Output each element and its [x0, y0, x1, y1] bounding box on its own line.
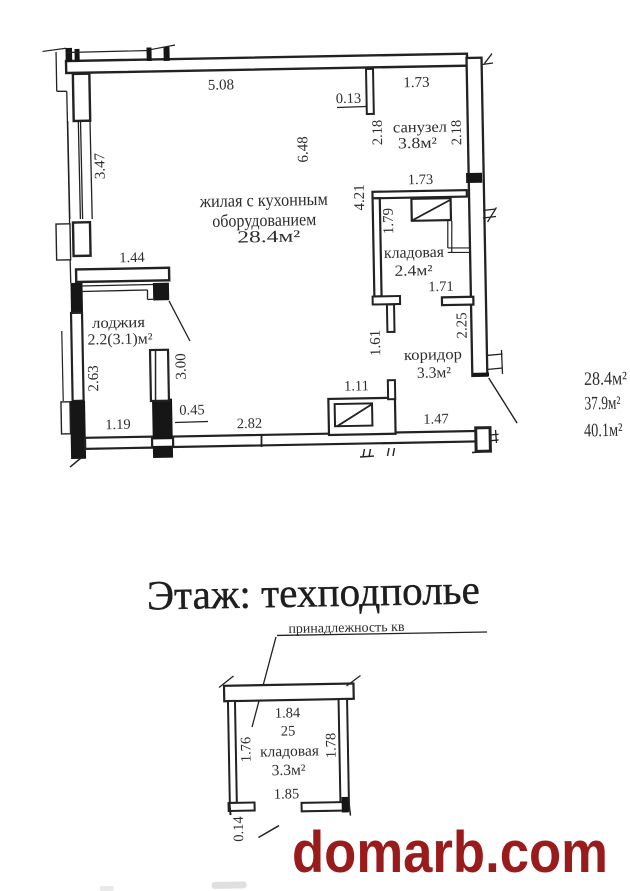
svg-text:2.18: 2.18 [370, 120, 386, 146]
svg-text:2.82: 2.82 [237, 416, 263, 432]
svg-text:1.11: 1.11 [344, 378, 369, 394]
svg-text:3.47: 3.47 [92, 152, 108, 179]
svg-text:0.45: 0.45 [179, 402, 205, 418]
svg-text:1.19: 1.19 [105, 417, 131, 433]
svg-text:4.21: 4.21 [352, 184, 368, 211]
svg-text:1.76: 1.76 [238, 737, 254, 763]
svg-text:1.73: 1.73 [403, 75, 430, 91]
svg-text:1.47: 1.47 [423, 411, 449, 427]
svg-text:жилая с кухонным: жилая с кухонным [199, 189, 328, 211]
svg-text:кладовая: кладовая [260, 743, 319, 761]
svg-text:санузел: санузел [393, 119, 448, 137]
svg-text:domarb.com: domarb.com [292, 820, 608, 885]
svg-text:2.4м²: 2.4м² [394, 262, 433, 280]
svg-text:2.2(3.1)м²: 2.2(3.1)м² [87, 330, 153, 348]
svg-text:3.3м²: 3.3м² [271, 762, 305, 780]
svg-text:1.61: 1.61 [368, 330, 384, 357]
svg-text:1.44: 1.44 [119, 250, 145, 266]
svg-text:1.84: 1.84 [275, 705, 301, 721]
svg-text:лоджия: лоджия [92, 314, 145, 332]
svg-text:2.63: 2.63 [86, 365, 102, 392]
svg-text:кладовая: кладовая [384, 244, 445, 262]
svg-text:40.1м²: 40.1м² [584, 420, 623, 442]
svg-text:37.9м²: 37.9м² [584, 393, 621, 415]
svg-text:28.4м²: 28.4м² [237, 226, 300, 246]
svg-text:3.8м²: 3.8м² [398, 135, 438, 153]
svg-text:1.85: 1.85 [274, 786, 300, 802]
svg-text:2.18: 2.18 [449, 120, 465, 146]
svg-text:25: 25 [281, 723, 296, 739]
svg-text:1.78: 1.78 [323, 733, 339, 759]
svg-text:5.08: 5.08 [208, 77, 235, 93]
svg-text:3.3м²: 3.3м² [417, 364, 452, 382]
svg-text:1.79: 1.79 [381, 208, 397, 235]
svg-text:Этаж: техподполье: Этаж: техподполье [146, 566, 480, 618]
svg-text:1.71: 1.71 [428, 279, 454, 295]
svg-text:6.48: 6.48 [295, 136, 311, 163]
svg-text:0.14: 0.14 [231, 815, 247, 841]
svg-text:3.00: 3.00 [173, 353, 189, 380]
svg-text:2.25: 2.25 [454, 312, 470, 339]
svg-text:28.4м²: 28.4м² [584, 368, 628, 390]
svg-text:1.73: 1.73 [408, 172, 434, 188]
svg-text:0.13: 0.13 [336, 91, 362, 107]
svg-text:коридор: коридор [404, 346, 463, 364]
